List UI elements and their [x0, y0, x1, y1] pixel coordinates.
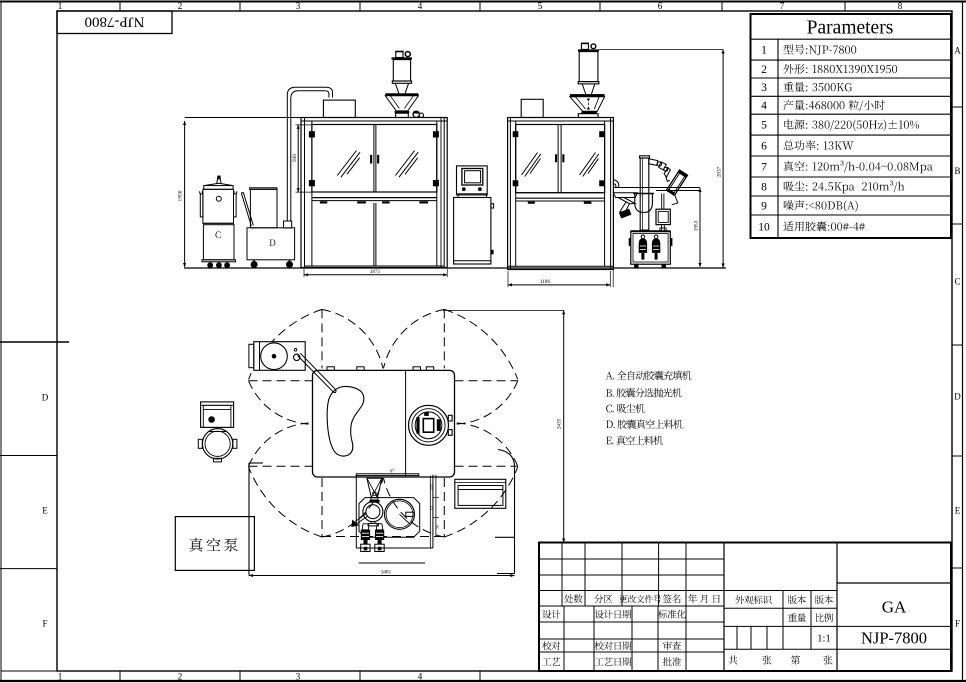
svg-text:1953: 1953 — [693, 220, 699, 231]
svg-text:7: 7 — [780, 1, 785, 11]
svg-text:2: 2 — [761, 64, 767, 76]
svg-text:52: 52 — [430, 506, 435, 510]
svg-text:GA: GA — [882, 598, 907, 617]
svg-text:3: 3 — [296, 672, 301, 682]
svg-text:4: 4 — [418, 672, 423, 682]
svg-text:C: C — [954, 277, 960, 287]
svg-text:8: 8 — [898, 1, 903, 11]
svg-text:Parameters: Parameters — [807, 18, 894, 39]
svg-text:3: 3 — [761, 82, 767, 94]
svg-text:2: 2 — [178, 1, 183, 11]
svg-text:NJP-7800: NJP-7800 — [84, 13, 144, 29]
svg-text:1950: 1950 — [178, 190, 184, 201]
svg-text:6: 6 — [658, 1, 663, 11]
svg-text:2435: 2435 — [557, 418, 563, 429]
svg-text:4: 4 — [418, 1, 423, 11]
svg-text:5: 5 — [538, 1, 543, 11]
svg-text:E: E — [42, 506, 48, 516]
svg-text:1871: 1871 — [370, 269, 381, 275]
svg-text:6: 6 — [761, 140, 767, 152]
svg-text:1:1: 1:1 — [817, 634, 830, 645]
svg-text:111: 111 — [430, 484, 435, 490]
svg-text:B: B — [954, 166, 960, 176]
svg-text:8: 8 — [761, 181, 767, 193]
svg-text:2837: 2837 — [716, 166, 722, 177]
svg-text:1: 1 — [58, 1, 63, 11]
svg-text:1: 1 — [761, 45, 767, 57]
svg-text:9: 9 — [761, 200, 767, 212]
svg-text:7: 7 — [761, 161, 767, 173]
svg-text:3481: 3481 — [381, 570, 392, 576]
svg-text:930: 930 — [292, 154, 298, 162]
svg-text:D: D — [954, 392, 961, 402]
svg-text:E: E — [955, 506, 961, 516]
svg-text:5: 5 — [761, 120, 767, 132]
svg-text:D: D — [42, 393, 49, 403]
svg-text:3: 3 — [296, 1, 301, 11]
svg-text:NJP-7800: NJP-7800 — [861, 629, 927, 648]
svg-text:10: 10 — [758, 221, 770, 233]
svg-text:A: A — [954, 46, 961, 56]
svg-text:2: 2 — [178, 672, 183, 682]
svg-text:1186: 1186 — [540, 279, 551, 285]
svg-text:F: F — [955, 619, 960, 629]
svg-text:F: F — [42, 619, 47, 629]
svg-text:4: 4 — [761, 100, 767, 112]
svg-text:1: 1 — [58, 672, 63, 682]
